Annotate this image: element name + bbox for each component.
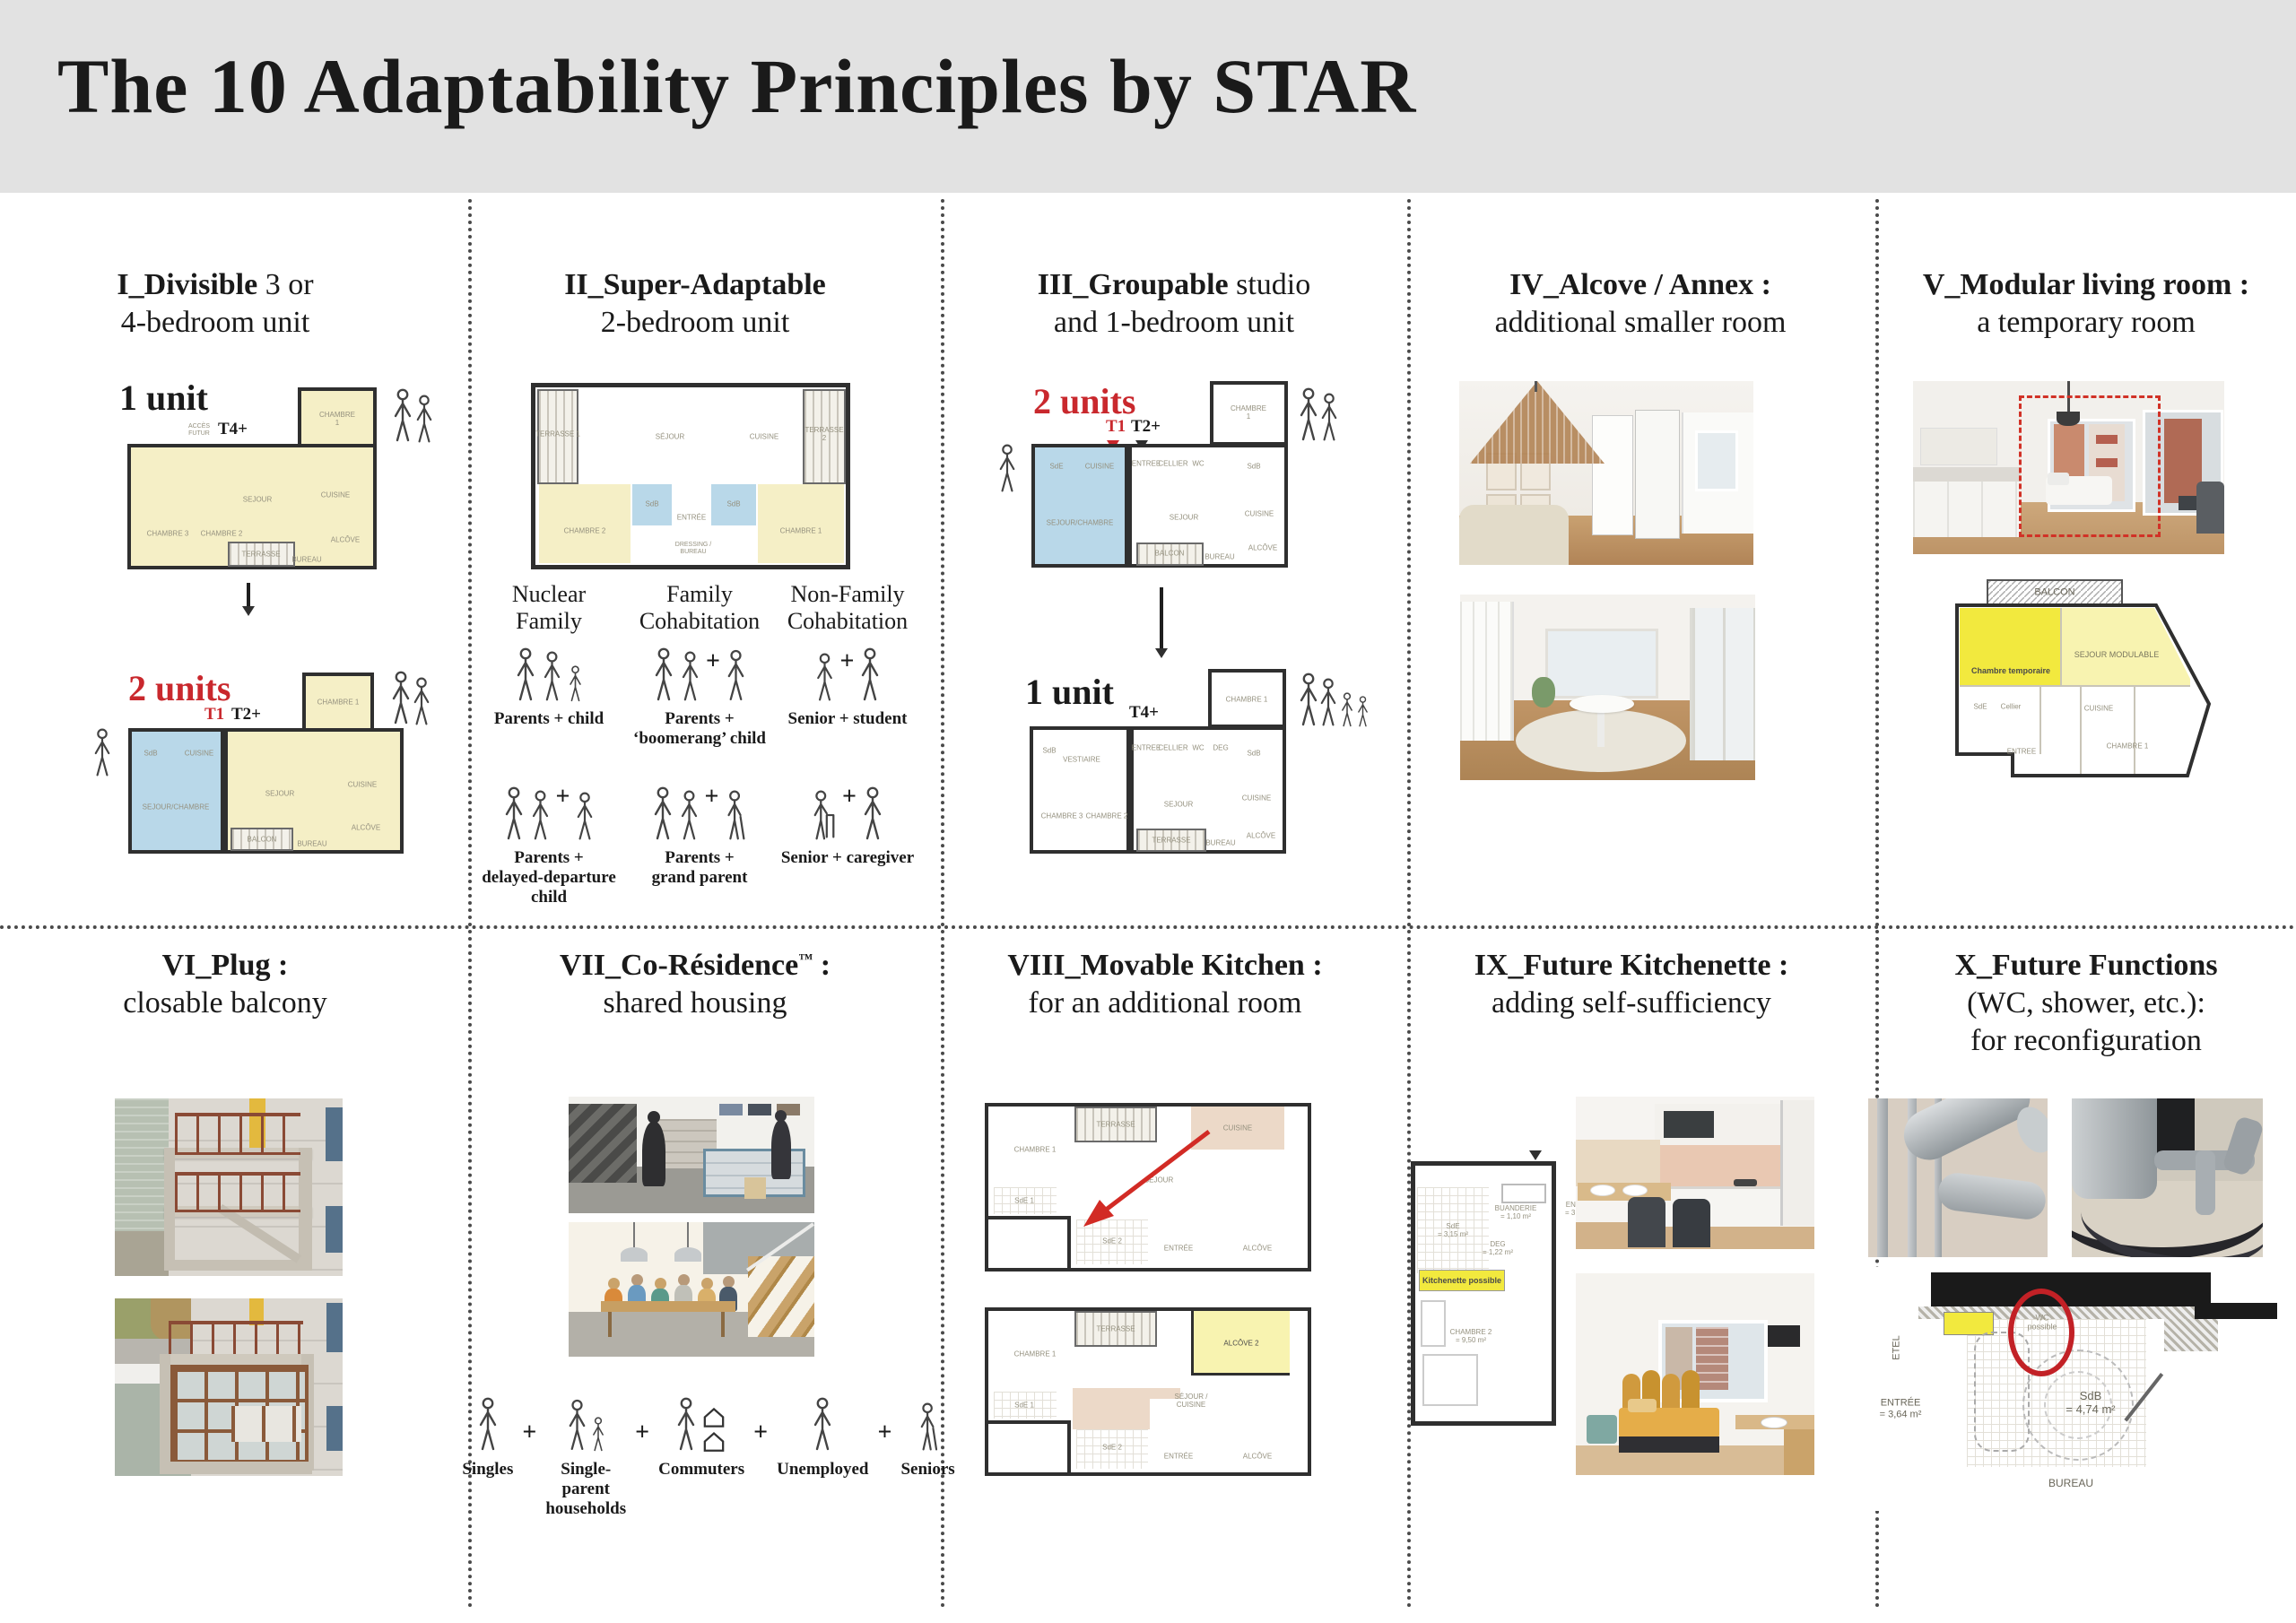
- person-icon: [1319, 393, 1339, 443]
- person-icon: [575, 792, 595, 842]
- entry-marker-icon: [1529, 1150, 1542, 1160]
- person-icon: [726, 649, 746, 703]
- panel10-plan: WC possible ETEL ENTRÉE = 3,64 m² SdB = …: [1868, 1267, 2281, 1511]
- room-label: WC possible: [2027, 1314, 2057, 1332]
- photo-balcony-closed: [115, 1298, 343, 1476]
- senior-walker-icon: [812, 790, 837, 842]
- child-icon: [1356, 696, 1370, 728]
- panel3-plan-2units: SdE CUISINE SEJOUR/CHAMBRE ENTREE CELLIE…: [1030, 381, 1290, 571]
- down-arrow: [1160, 587, 1163, 648]
- person-icon: [675, 1397, 697, 1453]
- photo-shared-kitchen: [569, 1097, 814, 1213]
- group-caption: Single-parent households: [545, 1453, 626, 1510]
- person-icon: [652, 786, 674, 842]
- group-seniors: Seniors: [900, 1388, 954, 1510]
- person-icon: [859, 647, 881, 703]
- row-divider: [0, 925, 2296, 929]
- panel9-plan: SdE = 3,15 m² BUANDERIE = 1,10 m² DEG = …: [1411, 1161, 1556, 1426]
- person-icon: [997, 444, 1017, 494]
- family-column-header: Family Cohabitation: [639, 581, 760, 633]
- panel4-title: IV_Alcove / Annex : additional smaller r…: [1434, 266, 1847, 342]
- family-caption: Senior + caregiver: [781, 842, 914, 904]
- house-cycle-icon: [700, 1406, 727, 1453]
- child-icon: [568, 665, 583, 703]
- family-caption: Parents + delayed-departure child: [473, 842, 625, 904]
- poster-title: The 10 Adaptability Principles by STAR: [0, 0, 2296, 131]
- room-label: CHAMBRE 1: [2107, 742, 2149, 750]
- person-icon: [1298, 387, 1319, 443]
- family-column-header: Non-Family Cohabitation: [787, 581, 908, 633]
- coresidence-icon-row: Singles + Single-parent households + Com…: [482, 1388, 935, 1510]
- photo-kitchenette: [1576, 1097, 1814, 1249]
- plus-sign: +: [840, 647, 855, 676]
- panel6-title: VI_Plug : closable balcony: [28, 947, 422, 1022]
- group-caption: Seniors: [900, 1453, 954, 1510]
- panel9-title: IX_Future Kitchenette : adding self-suff…: [1425, 947, 1838, 1022]
- panel2-title: II_Super-Adaptable 2-bedroom unit: [498, 266, 892, 342]
- child-icon: [591, 1417, 605, 1453]
- panel5-title: V_Modular living room : a temporary room: [1893, 266, 2279, 342]
- person-icon: [412, 677, 431, 727]
- room-label: Cellier: [2001, 702, 2022, 710]
- panel1-plan-1unit: CHAMBRE 1 SEJOUR CUISINE ALCÔVE CHAMBRE …: [127, 387, 377, 572]
- family-caption: Parents + child: [494, 703, 604, 765]
- kitchenette-highlight-label: Kitchenette possible: [1422, 1276, 1501, 1285]
- photo-modular-living-room: [1913, 381, 2224, 554]
- panel3-title: III_Groupable studio and 1-bedroom unit: [968, 266, 1380, 342]
- family-column-header: Nuclear Family: [512, 581, 586, 633]
- group-single-parent: Single-parent households: [545, 1388, 626, 1510]
- panel5-plan: [1955, 578, 2211, 777]
- panel3-plan-1unit: CHAMBRE 3 CHAMBRE 2 VESTIAIRE SdB ENTREE…: [1028, 665, 1290, 857]
- kitchen-move-arrow: [1067, 1123, 1220, 1239]
- panel8-plan-after: CHAMBRE 1 TERRASSE ALCÔVE 2 SÉJOUR / CUI…: [985, 1307, 1311, 1476]
- plus-sign: +: [556, 783, 570, 811]
- plus-sign: +: [522, 1419, 536, 1447]
- group-unemployed: Unemployed: [777, 1388, 868, 1510]
- plus-sign: +: [753, 1419, 768, 1447]
- trademark-symbol: ™: [798, 952, 813, 968]
- family-column-nuclear: Nuclear Family Parents + child + Parents…: [473, 581, 625, 904]
- panel1-title: I_Divisible 3 or 4-bedroom unit: [27, 266, 404, 342]
- photo-balcony-open: [115, 1098, 343, 1276]
- room-label: ENTRÉE = 3,64 m²: [1880, 1397, 1922, 1419]
- group-commuters: Commuters: [658, 1388, 744, 1510]
- person-icon: [92, 728, 112, 778]
- senior-icon: [724, 790, 747, 842]
- panel2-plan: TERRASSE 1 SÉJOUR CUISINE TERRASSE 2 CHA…: [531, 383, 850, 569]
- person-icon: [390, 671, 412, 726]
- room-label: ENTREE: [2007, 747, 2036, 755]
- person-icon: [503, 786, 525, 842]
- senior-icon: [814, 653, 835, 703]
- person-icon: [542, 651, 562, 703]
- family-figures: +: [814, 633, 882, 703]
- photo-ducts: [1868, 1098, 2048, 1257]
- wc-highlight-circle: [2008, 1289, 2074, 1376]
- down-arrow-head: [1155, 648, 1168, 658]
- down-arrow-head: [242, 606, 255, 616]
- room-label: SEJOUR MODULABLE: [2074, 650, 2160, 659]
- family-figures: +: [653, 633, 746, 703]
- senior-icon: [918, 1402, 939, 1453]
- family-figures: +: [652, 765, 748, 842]
- panel7-title: VII_Co-Résidence™ : shared housing: [489, 947, 901, 1022]
- plus-sign: +: [842, 783, 857, 811]
- person-icon: [477, 1397, 499, 1453]
- plus-sign: +: [878, 1419, 892, 1447]
- photo-alcove-room-open: [1459, 381, 1753, 565]
- person-icon: [567, 1399, 587, 1453]
- photo-pipes-cables: [2072, 1098, 2263, 1257]
- group-singles: Singles: [462, 1388, 513, 1510]
- person-icon: [1318, 678, 1338, 728]
- room-label: Chambre temporaire: [1971, 666, 2050, 675]
- person-icon: [414, 395, 434, 445]
- person-icon: [1298, 673, 1319, 728]
- person-icon: [862, 786, 883, 842]
- family-caption: Parents + ‘boomerang’ child: [633, 703, 766, 765]
- group-caption: Commuters: [658, 1453, 744, 1510]
- family-column-cohabitation: Family Cohabitation + Parents + ‘boomera…: [623, 581, 776, 904]
- room-label: CUISINE: [2084, 704, 2113, 712]
- person-icon: [680, 651, 700, 703]
- family-column-nonfamily: Non-Family Cohabitation + Senior + stude…: [771, 581, 924, 904]
- plus-sign: +: [706, 647, 720, 676]
- group-caption: Unemployed: [777, 1453, 868, 1510]
- person-icon: [530, 790, 551, 842]
- room-label: BALCON: [2034, 587, 2074, 599]
- family-caption: Parents + grand parent: [652, 842, 748, 904]
- photo-studio-bedroom: [1576, 1273, 1814, 1475]
- person-icon: [653, 647, 674, 703]
- child-icon: [1340, 692, 1354, 728]
- panel8-title: VIII_Movable Kitchen : for an additional…: [954, 947, 1376, 1022]
- family-caption: Senior + student: [788, 703, 908, 765]
- room-label: BUREAU: [2048, 1478, 2093, 1490]
- person-icon: [679, 790, 700, 842]
- photo-shared-dining: [569, 1222, 814, 1357]
- room-label: SdB = 4,74 m²: [2066, 1390, 2115, 1417]
- family-figures: [515, 633, 583, 703]
- family-figures: +: [503, 765, 596, 842]
- photo-alcove-room-table: [1460, 595, 1755, 780]
- room-label: SdE: [1973, 702, 1987, 710]
- person-icon: [515, 647, 536, 703]
- plus-sign: +: [705, 783, 719, 811]
- plus-sign: +: [635, 1419, 649, 1447]
- down-arrow: [247, 583, 250, 606]
- person-icon: [812, 1397, 833, 1453]
- panel1-plan-2units: SEJOUR/CHAMBRE SdB CUISINE CHAMBRE 1 SEJ…: [126, 668, 423, 856]
- person-icon: [392, 388, 413, 444]
- header-band: The 10 Adaptability Principles by STAR: [0, 0, 2296, 193]
- room-label: ETEL: [1892, 1335, 1903, 1360]
- group-caption: Singles: [462, 1453, 513, 1510]
- poster-canvas: The 10 Adaptability Principles by STAR I…: [0, 0, 2296, 1623]
- family-figures: +: [812, 765, 883, 842]
- panel10-title: X_Future Functions (WC, shower, etc.): f…: [1884, 947, 2288, 1060]
